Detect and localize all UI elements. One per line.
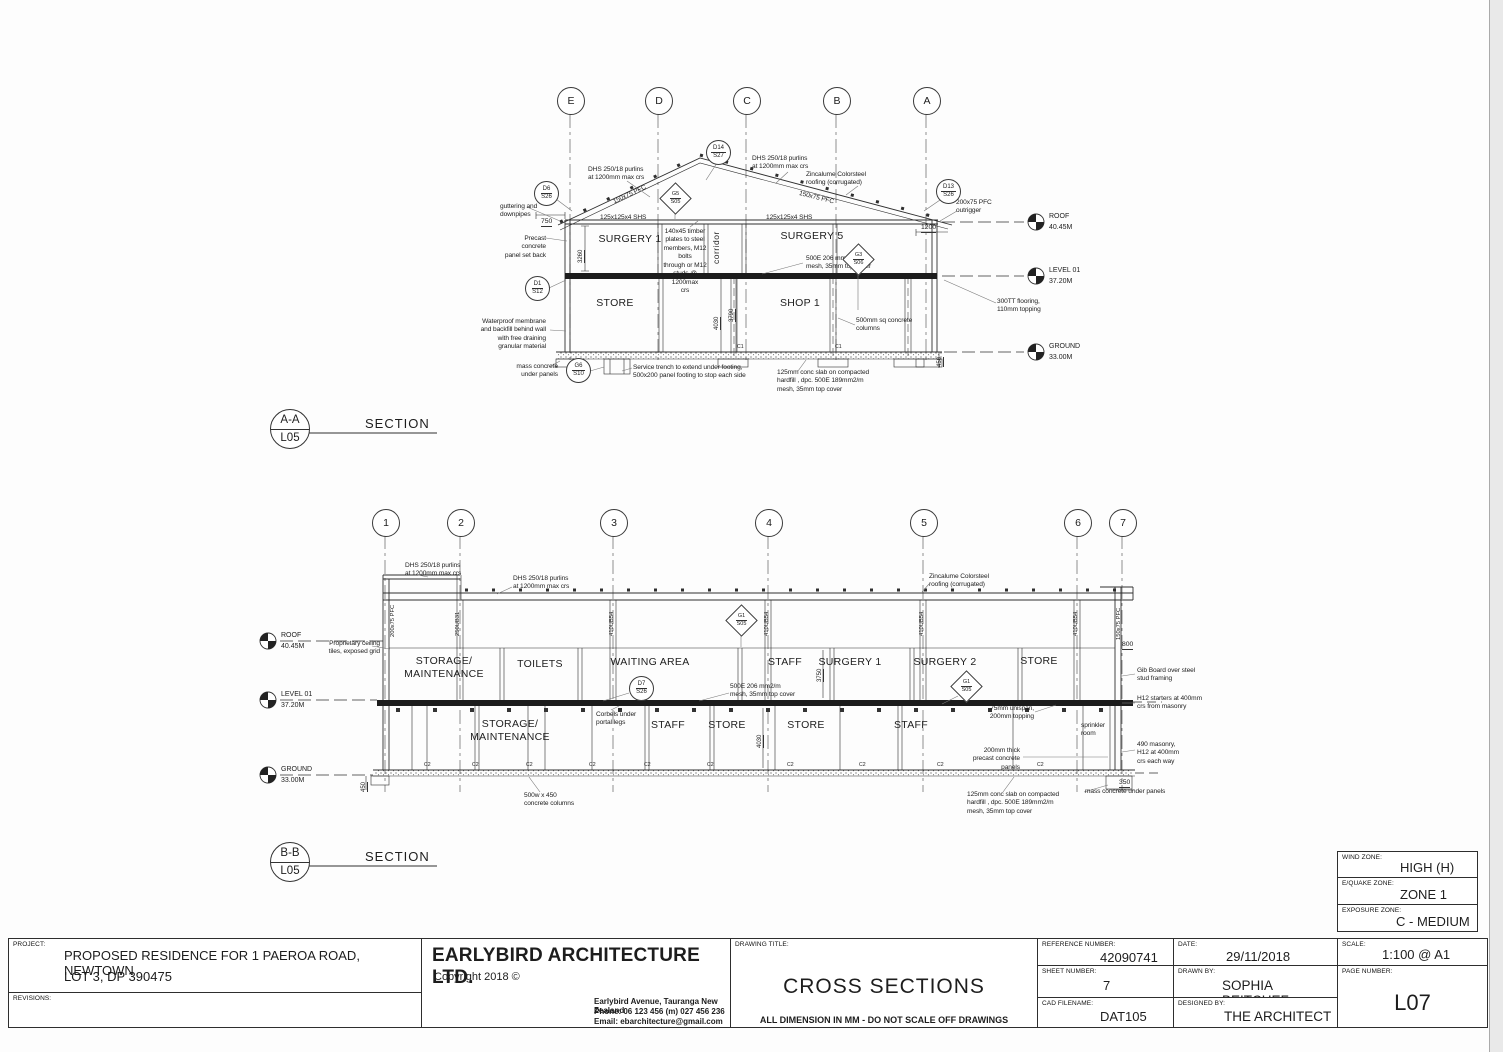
dimension-label: 750 — [541, 218, 552, 227]
member-size-label: 200x75 PFC — [390, 605, 396, 637]
detail-ref: D13 — [941, 184, 956, 193]
grid-bubble: 3 — [600, 509, 628, 537]
detail-ref: G1 — [736, 613, 747, 621]
column-mark-label: C2 — [707, 762, 714, 768]
section-a-name: A-A — [271, 410, 309, 430]
project-cell: PROJECT: PROPOSED RESIDENCE FOR 1 PAEROA… — [8, 938, 422, 993]
annotation-label: 490 masonry, H12 at 400mm crs each way — [1137, 741, 1179, 766]
annotation-label: DHS 250/18 purlins at 1200mm max crs — [588, 166, 644, 183]
level-label: LEVEL 0137.20M — [1049, 266, 1080, 288]
dimension-label: 3790 — [729, 309, 736, 322]
level-label: GROUND33.00M — [281, 765, 312, 787]
section-b-title: SECTION — [365, 849, 430, 864]
detail-sheet-ref: S26 — [634, 689, 649, 697]
member-size-label: 410UB54 — [764, 612, 770, 636]
drawing-title: CROSS SECTIONS — [731, 975, 1037, 999]
annotation-label: H12 starters at 400mm crs from masonry — [1137, 695, 1202, 712]
grid-bubble: C — [733, 87, 761, 115]
column-mark-label: C2 — [859, 762, 866, 768]
column-mark-label: C2 — [1037, 762, 1044, 768]
detail-ref: G6 — [572, 363, 584, 372]
annotation-label: Waterproof membrane and backfill behind … — [474, 318, 546, 352]
detail-sheet-ref: S06 — [852, 260, 866, 267]
dimension-label: 4030 — [757, 735, 764, 748]
page-number-value: L07 — [1338, 990, 1487, 1016]
annotation-label: Corbels under portal legs — [596, 711, 636, 728]
annotation-label: Gib Board over steel stud framing — [1137, 667, 1195, 684]
detail-sheet-ref: S10 — [571, 371, 586, 379]
column-mark-label: C2 — [787, 762, 794, 768]
equake-zone-label: E/QUAKE ZONE: — [1342, 880, 1394, 887]
firm-phone: Phone: 06 123 456 (m) 027 456 236 — [594, 1007, 725, 1016]
wind-zone-value: HIGH (H) — [1400, 860, 1454, 875]
room-label: WAITING AREA — [600, 656, 700, 669]
exposure-zone-cell: EXPOSURE ZONE: C - MEDIUM — [1337, 904, 1478, 932]
detail-sheet-ref: S12 — [530, 289, 545, 297]
date-label: DATE: — [1178, 941, 1197, 948]
dimension-label: 3750 — [817, 669, 824, 682]
room-label: SURGERY 2 — [895, 656, 995, 669]
annotation-label: 125x125x4 SHS — [766, 214, 812, 222]
member-size-label: 410UB54 — [1073, 612, 1079, 636]
detail-ref: D6 — [541, 186, 553, 195]
drawing-title-cell: DRAWING TITLE: CROSS SECTIONS ALL DIMENS… — [730, 938, 1038, 1028]
designed-by-label: DESIGNED BY: — [1178, 1000, 1225, 1007]
grid-bubble: 4 — [755, 509, 783, 537]
project-label: PROJECT: — [13, 941, 45, 948]
member-size-label: 150x75 PFC — [1116, 608, 1122, 640]
page-number-cell: PAGE NUMBER: L07 — [1337, 965, 1488, 1028]
annotation-label: 500mm sq concrete columns — [856, 317, 912, 334]
project-line2: LOT 3, DP 390475 — [64, 969, 172, 984]
reference-number-cell: REFERENCE NUMBER: 42090741 — [1037, 938, 1174, 966]
detail-sheet-ref: S26 — [539, 194, 554, 202]
room-label: STORE — [756, 719, 856, 732]
room-label: SURGERY 1 — [800, 656, 900, 669]
annotation-label: sprinkler room — [1081, 722, 1105, 739]
level-name: GROUND — [281, 765, 312, 776]
grid-bubble: 1 — [372, 509, 400, 537]
member-size-label: 250UB31 — [455, 612, 461, 636]
grid-bubble: D — [645, 87, 673, 115]
exposure-zone-value: C - MEDIUM — [1396, 914, 1470, 929]
detail-ref: G5 — [670, 191, 681, 199]
level-elevation: 33.00M — [1049, 353, 1080, 364]
designed-by-cell: DESIGNED BY: THE ARCHITECT — [1173, 997, 1338, 1028]
dimension-label: 450 — [361, 782, 368, 792]
detail-sheet-ref: S05 — [669, 199, 683, 206]
detail-ref: D1 — [532, 281, 544, 290]
section-a-marker: A-A L05 — [270, 409, 310, 449]
annotation-label: Service trench to extend under footing, … — [633, 364, 746, 381]
column-mark-label: C2 — [644, 762, 651, 768]
room-label: STORAGE/ MAINTENANCE — [460, 718, 560, 744]
annotation-label: Proprietary ceiling tiles, exposed grid — [322, 640, 380, 657]
annotation-label: DHS 250/18 purlins at 1200mm max crs — [513, 575, 569, 592]
annotation-label: 300TT flooring, 110mm topping — [997, 298, 1041, 315]
disclaimer-text: ALL DIMENSION IN MM - DO NOT SCALE OFF D… — [731, 1015, 1037, 1025]
section-a-sheet-ref: L05 — [271, 430, 309, 447]
firm-email: Email: ebarchitecture@gmail.com — [594, 1017, 723, 1026]
drawn-by-cell: DRAWN BY: SOPHIA BEITCHEF — [1173, 965, 1338, 998]
sheet-number-value: 7 — [1103, 978, 1110, 993]
room-label: STORAGE/ MAINTENANCE — [394, 655, 494, 681]
level-elevation: 37.20M — [1049, 277, 1080, 288]
column-mark-label: C2 — [589, 762, 596, 768]
sheet-number-label: SHEET NUMBER: — [1042, 968, 1097, 975]
revisions-label: REVISIONS: — [13, 995, 51, 1002]
reference-number-label: REFERENCE NUMBER: — [1042, 941, 1116, 948]
detail-sheet-ref: S27 — [711, 153, 726, 161]
level-name: LEVEL 01 — [281, 690, 312, 701]
section-a-title: SECTION — [365, 416, 430, 431]
sheet-number-cell: SHEET NUMBER: 7 — [1037, 965, 1174, 998]
dimension-label: 4030 — [714, 317, 721, 330]
room-label: STORE — [989, 655, 1089, 668]
scale-value: 1:100 @ A1 — [1382, 947, 1450, 962]
designed-by-value: THE ARCHITECT — [1224, 1009, 1331, 1024]
detail-sheet-ref: S05 — [735, 621, 749, 628]
level-elevation: 40.45M — [1049, 223, 1072, 234]
date-cell: DATE: 29/11/2018 — [1173, 938, 1338, 966]
room-label: STAFF — [861, 719, 961, 732]
drawn-by-label: DRAWN BY: — [1178, 968, 1215, 975]
grid-bubble: B — [823, 87, 851, 115]
section-b-sheet-ref: L05 — [271, 863, 309, 880]
dimension-label: 3260 — [578, 250, 585, 263]
cad-filename-label: CAD FILENAME: — [1042, 1000, 1093, 1007]
dimension-label: 350 — [1119, 779, 1130, 788]
detail-sheet-ref: S26 — [941, 192, 956, 200]
annotation-label: 75mm unispan, 200mm topping — [986, 705, 1034, 722]
member-size-label: 410UB54 — [609, 612, 615, 636]
level-label: LEVEL 0137.20M — [281, 690, 312, 712]
level-elevation: 37.20M — [281, 701, 312, 712]
grid-bubble: 7 — [1109, 509, 1137, 537]
room-label: STORE — [565, 297, 665, 310]
section-b-marker: B-B L05 — [270, 842, 310, 882]
level-label: ROOF40.45M — [281, 631, 304, 653]
detail-bubble: D1S12 — [525, 276, 550, 301]
column-mark-label: C1 — [737, 344, 744, 350]
grid-bubble: E — [557, 87, 585, 115]
member-size-label: 410UB54 — [919, 612, 925, 636]
annotation-label: 500w x 450 concrete columns — [524, 792, 574, 809]
annotation-label: guttering and downpipes — [500, 203, 537, 220]
annotation-label: mass concrete under panels — [510, 363, 558, 380]
column-mark-label: C2 — [526, 762, 533, 768]
room-label: corridor — [711, 231, 721, 264]
annotation-label: 200mm thick precast concrete panels — [960, 747, 1020, 772]
room-label: SHOP 1 — [750, 297, 850, 310]
grid-bubble: A — [913, 87, 941, 115]
level-name: GROUND — [1049, 342, 1080, 353]
detail-ref: D7 — [636, 681, 648, 690]
column-mark-label: C1 — [835, 344, 842, 350]
level-name: ROOF — [1049, 212, 1072, 223]
annotation-label: 500E 206 mm2/m mesh, 35mm top cover — [730, 683, 795, 700]
detail-bubble: D6S26 — [534, 181, 559, 206]
column-mark-label: C2 — [424, 762, 431, 768]
annotation-label: 125mm conc slab on compacted hardfill , … — [967, 791, 1059, 816]
page-edge — [1489, 0, 1503, 1052]
scale-label: SCALE: — [1342, 941, 1366, 948]
dimension-label: 1200 — [921, 224, 936, 233]
level-label: GROUND33.00M — [1049, 342, 1080, 364]
equake-zone-cell: E/QUAKE ZONE: ZONE 1 — [1337, 877, 1478, 905]
detail-ref: D14 — [711, 145, 726, 154]
drawing-sheet: EDCBADHS 250/18 purlins at 1200mm max cr… — [0, 0, 1503, 1052]
detail-sheet-ref: S05 — [960, 687, 974, 694]
detail-ref: G1 — [961, 679, 972, 687]
annotation-label: Zincalume Colorsteel roofing (corrugated… — [806, 171, 866, 188]
scale-cell: SCALE: 1:100 @ A1 — [1337, 938, 1488, 966]
drawing-title-label: DRAWING TITLE: — [735, 941, 789, 948]
revisions-cell: REVISIONS: — [8, 992, 422, 1028]
copyright-text: Copyright 2018 © — [434, 971, 520, 983]
exposure-zone-label: EXPOSURE ZONE: — [1342, 907, 1401, 914]
level-elevation: 33.00M — [281, 776, 312, 787]
annotation-label: mass concrete under panels — [1085, 788, 1165, 796]
detail-bubble: G6S10 — [566, 358, 591, 383]
annotation-label: Zincalume Colorsteel roofing (corrugated… — [929, 573, 989, 590]
room-label: SURGERY 5 — [762, 230, 862, 243]
level-name: LEVEL 01 — [1049, 266, 1080, 277]
room-label: TOILETS — [490, 658, 590, 671]
level-label: ROOF40.45M — [1049, 212, 1072, 234]
firm-cell: EARLYBIRD ARCHITECTURE LTD. Copyright 20… — [421, 938, 731, 1028]
room-label: SURGERY 1 — [580, 233, 680, 246]
section-b-name: B-B — [271, 843, 309, 863]
reference-number-value: 42090741 — [1100, 950, 1158, 965]
date-value: 29/11/2018 — [1226, 949, 1290, 964]
page-number-label: PAGE NUMBER: — [1342, 968, 1393, 975]
annotation-label: DHS 250/18 purlins at 1200mm max crs — [405, 562, 461, 579]
equake-zone-value: ZONE 1 — [1400, 887, 1447, 902]
annotation-label: 200x75 PFC outrigger — [956, 199, 992, 216]
level-elevation: 40.45M — [281, 642, 304, 653]
annotation-label: 125x125x4 SHS — [600, 214, 646, 222]
dimension-label: 800 — [1122, 641, 1133, 650]
detail-bubble: D14S27 — [706, 140, 731, 165]
detail-bubble: D13S26 — [936, 179, 961, 204]
grid-bubble: 6 — [1064, 509, 1092, 537]
dimension-label: 450 — [937, 357, 944, 367]
column-mark-label: C2 — [937, 762, 944, 768]
annotation-label: Precast concrete panel set back — [500, 235, 546, 260]
detail-ref: G3 — [853, 252, 864, 260]
column-mark-label: C2 — [472, 762, 479, 768]
grid-bubble: 2 — [447, 509, 475, 537]
wind-zone-label: WIND ZONE: — [1342, 854, 1382, 861]
level-name: ROOF — [281, 631, 304, 642]
annotation-label: 125mm conc slab on compacted hardfill , … — [777, 369, 869, 394]
grid-bubble: 5 — [910, 509, 938, 537]
wind-zone-cell: WIND ZONE: HIGH (H) — [1337, 851, 1478, 878]
cad-filename-value: DAT105 — [1100, 1009, 1147, 1024]
annotation-label: DHS 250/18 purlins at 1200mm max crs — [752, 155, 808, 172]
detail-bubble: D7S26 — [629, 676, 654, 701]
cad-filename-cell: CAD FILENAME: DAT105 — [1037, 997, 1174, 1028]
